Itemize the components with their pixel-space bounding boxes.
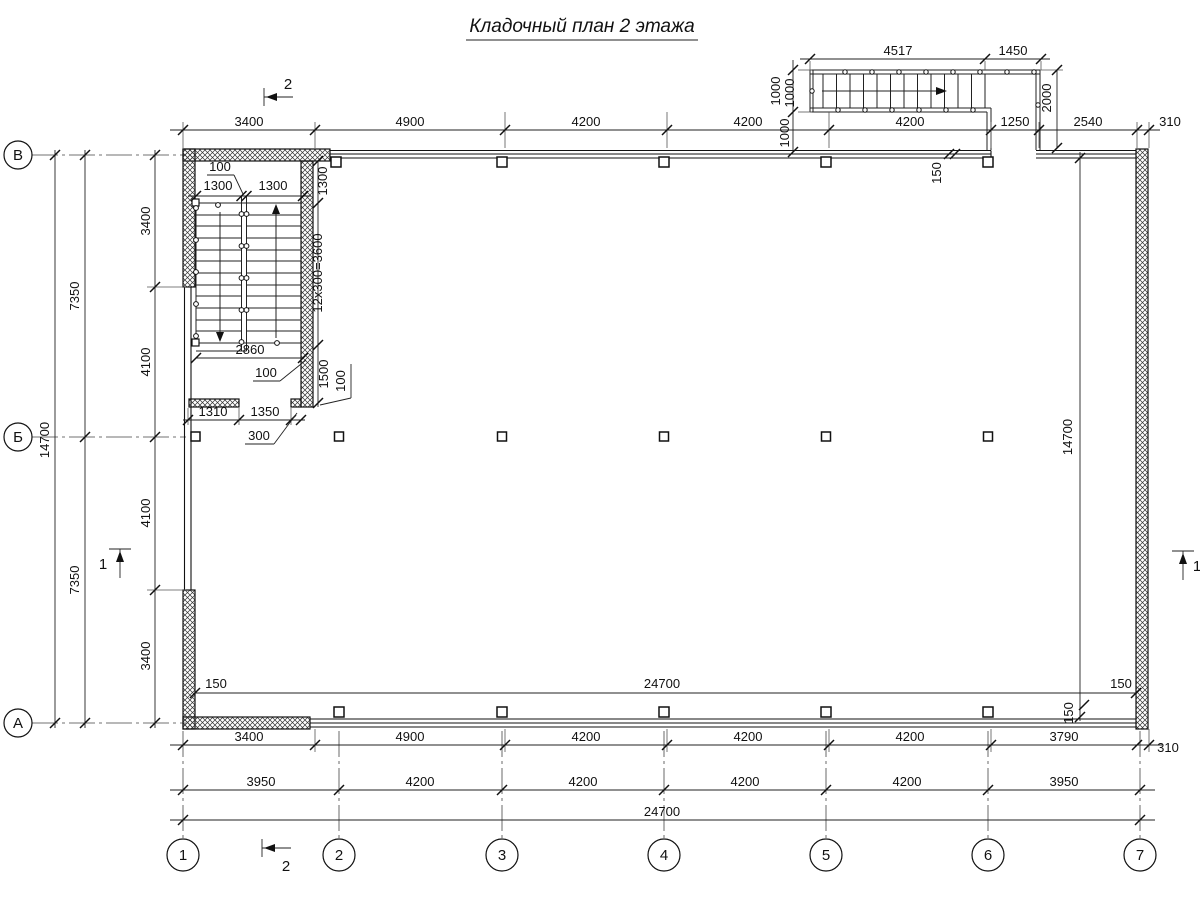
dim-label: 1500: [316, 360, 331, 389]
grid-bubble-label: 5: [822, 847, 830, 864]
dim-label: 1000: [782, 79, 797, 108]
dim-label: 150: [1061, 702, 1076, 724]
grid-bubble-label: 2: [335, 847, 343, 864]
dim-label: 1000: [768, 77, 783, 106]
dim-label: 100: [255, 365, 277, 380]
dim-label: 4200: [569, 774, 598, 789]
grid-bubble-label: Б: [13, 429, 23, 446]
dim-label: 3400: [235, 114, 264, 129]
dim-label: 3400: [138, 642, 153, 671]
grid-bubble-label: 7: [1136, 847, 1144, 864]
dim-label: 1000: [777, 119, 792, 148]
dim-label: 14700: [1060, 419, 1075, 455]
dim-label: 24700: [644, 676, 680, 691]
dim-label: 4100: [138, 499, 153, 528]
dim-label: 1250: [1001, 114, 1030, 129]
dim-label: 4100: [138, 348, 153, 377]
dim-label: 2000: [1039, 84, 1054, 113]
dim-label: 150: [929, 162, 944, 184]
dim-label: 150: [1110, 676, 1132, 691]
section-label: 1: [99, 556, 107, 573]
dim-label: 12x300=3600: [310, 233, 325, 312]
dim-label: 2860: [236, 342, 265, 357]
section-label: 1: [1193, 558, 1200, 575]
dim-label: 3400: [235, 729, 264, 744]
dim-label: 100: [333, 370, 348, 392]
dim-label: 4200: [731, 774, 760, 789]
dim-label: 310: [1157, 740, 1179, 755]
dim-label: 4200: [572, 114, 601, 129]
grid-bubble-label: В: [13, 147, 23, 164]
grid-bubble-label: 4: [660, 847, 668, 864]
dim-label: 300: [248, 428, 270, 443]
grid-bubble-label: 1: [179, 847, 187, 864]
drawing-sheet: Кладочный план 2 этажа: [0, 0, 1200, 900]
dim-label: 3950: [247, 774, 276, 789]
grid-bubble-label: 6: [984, 847, 992, 864]
dim-label: 1300: [315, 167, 330, 196]
dim-label: 1300: [204, 178, 233, 193]
dim-label: 1310: [199, 404, 228, 419]
section-label: 2: [284, 76, 292, 93]
dim-label: 3400: [138, 207, 153, 236]
dim-label: 14700: [37, 422, 52, 458]
dim-label: 1300: [259, 178, 288, 193]
dim-label: 100: [209, 159, 231, 174]
drawing-title: Кладочный план 2 этажа: [469, 16, 694, 37]
dim-label: 1450: [999, 43, 1028, 58]
section-label: 2: [282, 858, 290, 875]
dim-label: 3790: [1050, 729, 1079, 744]
dim-label: 7350: [67, 566, 82, 595]
dim-label: 4900: [396, 114, 425, 129]
dim-label: 4200: [572, 729, 601, 744]
sheet-background: [0, 0, 1200, 900]
grid-bubble-label: А: [13, 715, 23, 732]
dim-label: 4200: [896, 114, 925, 129]
dim-label: 7350: [67, 282, 82, 311]
dim-label: 4200: [406, 774, 435, 789]
dim-label: 2540: [1074, 114, 1103, 129]
dim-label: 4200: [893, 774, 922, 789]
dim-label: 150: [205, 676, 227, 691]
dim-label: 310: [1159, 114, 1181, 129]
dim-label: 4200: [896, 729, 925, 744]
dim-label: 24700: [644, 804, 680, 819]
dim-label: 3950: [1050, 774, 1079, 789]
grid-bubble-label: 3: [498, 847, 506, 864]
floor-plan-drawing: Кладочный план 2 этажа: [0, 0, 1200, 900]
dim-label: 4200: [734, 729, 763, 744]
dim-label: 1350: [251, 404, 280, 419]
dim-label: 4517: [884, 43, 913, 58]
dim-label: 4200: [734, 114, 763, 129]
dim-label: 4900: [396, 729, 425, 744]
